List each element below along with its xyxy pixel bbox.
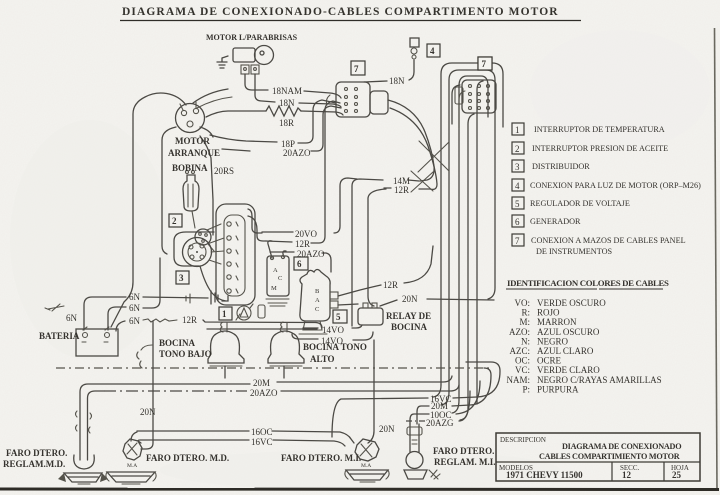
svg-text:4: 4 (430, 46, 435, 56)
svg-text:RELAY DE: RELAY DE (386, 311, 431, 321)
svg-text:12R: 12R (182, 315, 197, 325)
svg-text:20VO: 20VO (295, 229, 317, 239)
svg-text:ALTO: ALTO (310, 354, 335, 364)
svg-text:20RS: 20RS (214, 166, 234, 176)
svg-text:MOTOR: MOTOR (175, 136, 210, 146)
svg-text:N:: N: (521, 336, 530, 346)
svg-text:1971 CHEVY 11500: 1971 CHEVY 11500 (506, 470, 583, 480)
svg-text:6N: 6N (129, 292, 141, 302)
svg-text:TONO BAJO: TONO BAJO (159, 349, 212, 359)
svg-text:DESCRIPCION: DESCRIPCION (500, 436, 546, 444)
svg-text:MOTOR L/PARABRISAS: MOTOR L/PARABRISAS (206, 33, 298, 42)
svg-text:12R: 12R (383, 280, 398, 290)
svg-text:BATERIA: BATERIA (39, 331, 80, 341)
svg-text:12: 12 (622, 470, 632, 480)
svg-text:AZUL OSCURO: AZUL OSCURO (537, 327, 600, 337)
svg-text:B: B (315, 288, 320, 295)
svg-text:20AZO: 20AZO (283, 148, 311, 158)
svg-text:3: 3 (179, 273, 184, 283)
svg-text:1: 1 (515, 125, 520, 135)
svg-text:VC:: VC: (515, 365, 530, 375)
svg-text:2: 2 (515, 144, 520, 154)
svg-text:20M: 20M (253, 378, 270, 388)
svg-text:FARO DTERO.: FARO DTERO. (6, 448, 67, 458)
svg-text:BOCINA: BOCINA (391, 322, 428, 332)
svg-text:C: C (278, 275, 282, 282)
svg-text:14VO: 14VO (322, 325, 344, 335)
svg-text:OCRE: OCRE (537, 356, 562, 366)
svg-text:18R: 18R (279, 118, 294, 128)
svg-text:20N: 20N (379, 424, 395, 434)
svg-text:20N: 20N (402, 294, 418, 304)
svg-text:PURPURA: PURPURA (537, 384, 579, 394)
svg-text:6N: 6N (66, 313, 78, 323)
svg-text:VERDE OSCURO: VERDE OSCURO (537, 298, 606, 308)
svg-text:3: 3 (515, 162, 520, 172)
svg-text:OC:: OC: (515, 356, 530, 366)
svg-text:6N: 6N (129, 303, 141, 313)
svg-text:25: 25 (672, 470, 682, 480)
svg-text:M:: M: (519, 317, 530, 327)
svg-text:NEGRO: NEGRO (537, 336, 568, 346)
svg-text:16OC: 16OC (251, 427, 273, 437)
svg-text:6N: 6N (129, 316, 141, 326)
svg-text:6: 6 (297, 259, 302, 269)
svg-text:AZO:: AZO: (509, 327, 530, 337)
svg-text:M.A: M.A (127, 463, 137, 469)
svg-text:M.A: M.A (361, 463, 371, 469)
svg-text:DIAGRAMA DE CONEXIONADO-CABLES: DIAGRAMA DE CONEXIONADO-CABLES COMPARTIM… (122, 6, 559, 18)
svg-text:REGLAM.M.D.: REGLAM.M.D. (3, 459, 65, 469)
svg-text:20AZG: 20AZG (426, 418, 454, 428)
svg-text:NEGRO C/RAYAS AMARILLAS: NEGRO C/RAYAS AMARILLAS (537, 375, 662, 385)
svg-text:6: 6 (515, 217, 520, 227)
svg-text:VERDE CLARO: VERDE CLARO (537, 365, 600, 375)
svg-text:20AZO: 20AZO (250, 388, 278, 398)
svg-text:FARO DTERO.: FARO DTERO. (433, 446, 494, 456)
svg-text:A: A (315, 297, 320, 304)
svg-text:REGLAM. M.I.: REGLAM. M.I. (434, 457, 496, 467)
svg-text:P:: P: (522, 384, 530, 394)
svg-text:INTERRUPTOR DE TEMPERATURA: INTERRUPTOR DE TEMPERATURA (534, 125, 665, 134)
svg-text:DE INSTRUMENTOS: DE INSTRUMENTOS (536, 247, 612, 256)
svg-text:REGULADOR DE VOLTAJE: REGULADOR DE VOLTAJE (530, 199, 630, 208)
svg-text:ROJO: ROJO (537, 308, 560, 318)
svg-text:12R: 12R (394, 185, 409, 195)
svg-text:DIAGRAMA DE CONEXIONADO: DIAGRAMA DE CONEXIONADO (562, 442, 681, 451)
svg-text:FARO DTERO. M.I.: FARO DTERO. M.I. (281, 453, 361, 463)
svg-text:7: 7 (354, 64, 359, 74)
svg-text:18NAM: 18NAM (272, 86, 302, 96)
svg-text:GENERADOR: GENERADOR (530, 217, 581, 226)
svg-text:VO:: VO: (515, 298, 531, 308)
svg-text:IDENTIFICACION COLORES DE CABL: IDENTIFICACION COLORES DE CABLES (507, 278, 669, 288)
svg-text:12R: 12R (295, 239, 310, 249)
svg-text:A: A (273, 267, 278, 274)
svg-text:20N: 20N (140, 407, 156, 417)
svg-text:BOCINA TONO: BOCINA TONO (303, 342, 367, 352)
svg-text:NAM:: NAM: (506, 375, 530, 385)
svg-text:M: M (271, 285, 277, 292)
svg-text:AZC:: AZC: (509, 346, 530, 356)
svg-text:INTERRUPTOR PRESION DE ACEITE: INTERRUPTOR PRESION DE ACEITE (532, 144, 668, 153)
svg-text:2: 2 (172, 216, 177, 226)
svg-text:18N: 18N (279, 98, 295, 108)
svg-text:DISTRIBUIDOR: DISTRIBUIDOR (532, 162, 590, 171)
svg-text:BOCINA: BOCINA (159, 338, 196, 348)
svg-text:7: 7 (482, 59, 487, 69)
svg-text:BOBINA: BOBINA (172, 163, 208, 173)
svg-text:5: 5 (515, 199, 520, 209)
svg-text:4: 4 (515, 181, 520, 191)
svg-text:R:: R: (521, 308, 530, 318)
svg-text:20AZO: 20AZO (297, 249, 325, 259)
svg-text:1: 1 (222, 309, 227, 319)
svg-text:CONEXION PARA LUZ DE MOTOR (OR: CONEXION PARA LUZ DE MOTOR (ORP–M26) (530, 181, 701, 190)
svg-text:5: 5 (336, 312, 341, 322)
svg-text:CONEXION A MAZOS DE CABLES PAN: CONEXION A MAZOS DE CABLES PANEL (531, 236, 686, 245)
svg-text:18N: 18N (389, 76, 405, 86)
svg-text:FARO DTERO. M.D.: FARO DTERO. M.D. (146, 453, 229, 463)
svg-text:16VC: 16VC (251, 437, 273, 447)
svg-text:CABLES COMPARTIMIENTO MOTOR: CABLES COMPARTIMIENTO MOTOR (539, 452, 680, 461)
svg-text:ARRANQUE: ARRANQUE (168, 148, 220, 158)
svg-text:AZUL CLARO: AZUL CLARO (537, 346, 594, 356)
svg-text:MARRON: MARRON (537, 317, 577, 327)
svg-text:C: C (315, 306, 319, 313)
svg-text:7: 7 (515, 236, 520, 246)
